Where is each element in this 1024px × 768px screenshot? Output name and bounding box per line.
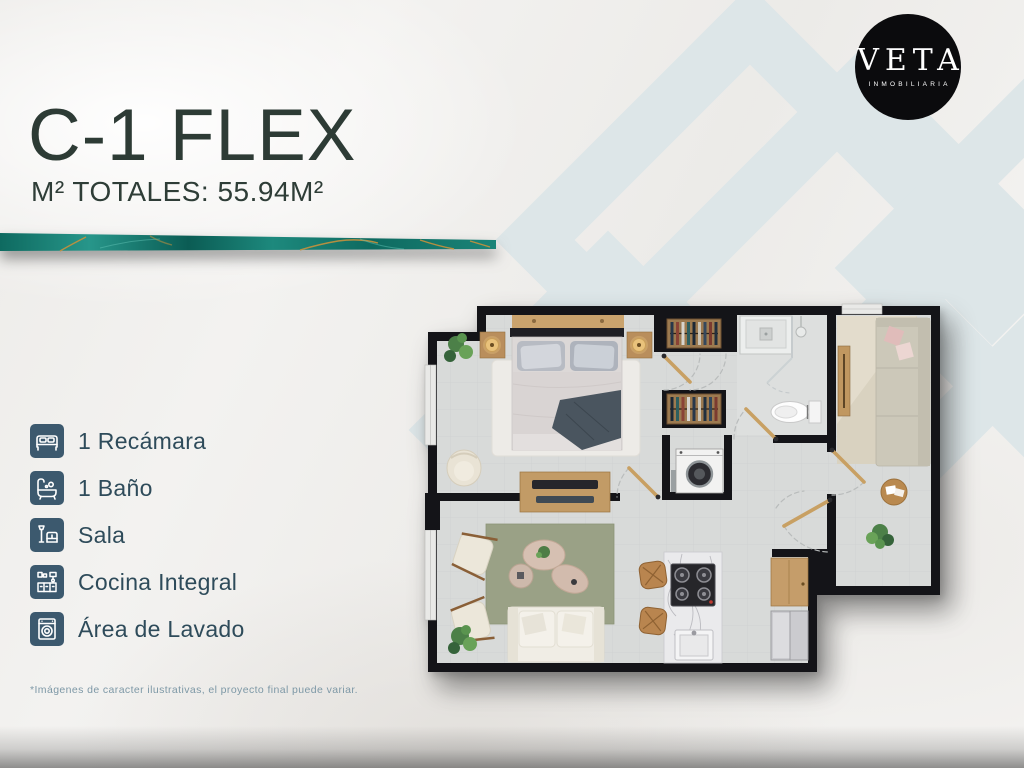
washing-machine xyxy=(671,449,723,493)
feature-kitchen: Cocina Integral xyxy=(30,565,245,599)
bedroom-chair xyxy=(447,450,481,486)
closet-1 xyxy=(667,319,721,348)
feature-bedroom-label: 1 Recámara xyxy=(78,428,206,455)
bath-icon xyxy=(30,471,64,505)
sofa-icon xyxy=(30,518,64,552)
veta-logo-text: VETA xyxy=(851,46,965,76)
unit-total-area: M² TOTALES: 55.94M² xyxy=(31,176,324,208)
disclaimer-text: *Imágenes de caracter ilustrativas, el p… xyxy=(30,684,358,696)
headboard-shelf xyxy=(512,315,624,328)
veta-logo-subtext: INMOBILIARIA xyxy=(865,81,950,88)
veta-logo: VETA INMOBILIARIA xyxy=(855,14,961,120)
feature-bathroom-label: 1 Baño xyxy=(78,475,153,502)
feature-laundry: Área de Lavado xyxy=(30,612,245,646)
feature-living: Sala xyxy=(30,518,245,552)
teal-marble-strip xyxy=(0,228,497,255)
feature-living-label: Sala xyxy=(78,522,125,549)
feature-bathroom: 1 Baño xyxy=(30,471,245,505)
headboard xyxy=(510,328,624,337)
tv-console xyxy=(520,472,610,512)
feature-laundry-label: Área de Lavado xyxy=(78,616,245,643)
floorplan xyxy=(424,302,942,674)
flyer-canvas: C-1 FLEX M² TOTALES: 55.94M² VETA INMOBI… xyxy=(0,0,1024,768)
closet-2 xyxy=(667,394,721,424)
living-sofa xyxy=(508,607,604,662)
bottom-shadow xyxy=(0,726,1024,768)
feature-kitchen-label: Cocina Integral xyxy=(78,569,237,596)
kitchen-icon xyxy=(30,565,64,599)
feature-bedroom: 1 Recámara xyxy=(30,424,245,458)
unit-title: C-1 FLEX xyxy=(28,94,356,177)
feature-list: 1 Recámara 1 Baño xyxy=(30,424,245,659)
washer-icon xyxy=(30,612,64,646)
bar-stool-1 xyxy=(638,560,667,589)
bar-stool-2 xyxy=(639,607,668,636)
bed-icon xyxy=(30,424,64,458)
